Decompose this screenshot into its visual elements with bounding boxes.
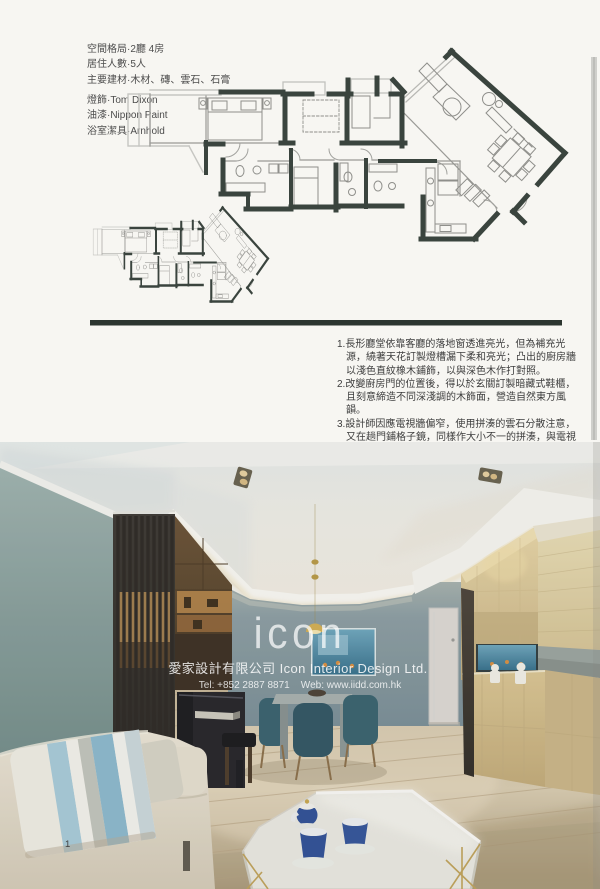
svg-text:愛家設計有限公司 Icon Interior Design: 愛家設計有限公司 Icon Interior Design Ltd. (168, 661, 427, 676)
svg-text:Tel: +852 2887 8871 Web: ww: Tel: +852 2887 8871 Web: www.iidd.com.hk (199, 680, 402, 691)
svg-text:icon: icon (254, 608, 347, 657)
